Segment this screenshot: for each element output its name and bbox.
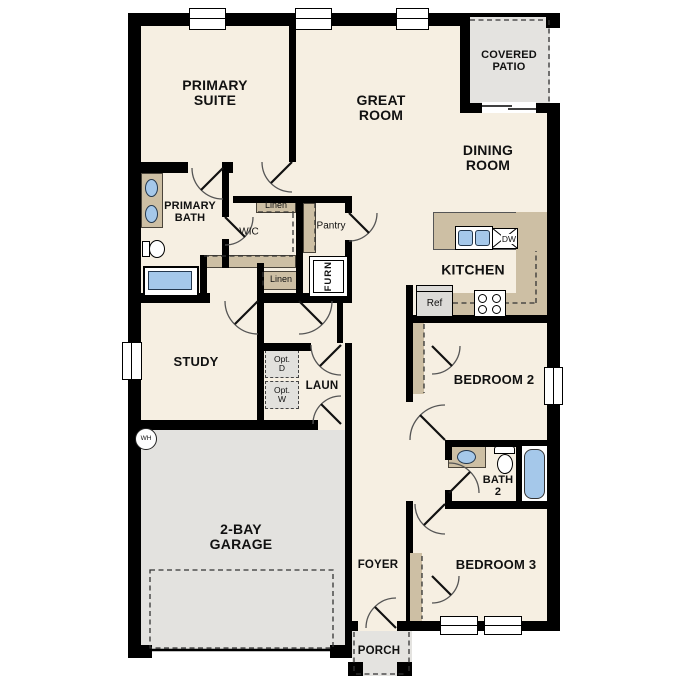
- label-linen-top: Linen: [265, 201, 287, 211]
- label-wic: WIC: [239, 228, 258, 239]
- water-heater: WH: [135, 428, 157, 450]
- bath2-toilet-tank: [494, 446, 515, 454]
- label-kitchen: KITCHEN: [441, 262, 505, 277]
- label-linen-bottom: Linen: [270, 275, 292, 285]
- label-foyer: FOYER: [358, 559, 399, 571]
- window-left-study: [122, 342, 142, 380]
- bath2-toilet-bowl: [497, 454, 513, 474]
- burner-1: [478, 294, 487, 303]
- label-great-room: GREATROOM: [357, 93, 406, 123]
- label-primary-bath: PRIMARYBATH: [164, 201, 216, 225]
- label-pantry: Pantry: [317, 222, 346, 233]
- fridge-label: Ref: [417, 298, 452, 309]
- window-top-1: [189, 8, 226, 30]
- bath2-sink: [457, 450, 476, 464]
- label-porch: PORCH: [358, 645, 401, 657]
- primary-bath-sink-1: [145, 179, 158, 197]
- fridge-box: Ref: [416, 285, 453, 317]
- window-right-bedroom2: [544, 367, 563, 405]
- bath2-tub: [524, 449, 545, 499]
- primary-bath-sink-2: [145, 205, 158, 223]
- window-bottom-bed3-2: [484, 616, 522, 635]
- kitchen-sink-unit: [455, 226, 493, 250]
- dishwasher-box: DW: [492, 228, 518, 249]
- furnace-box: FURN: [309, 256, 348, 297]
- primary-tub: [143, 266, 199, 297]
- floor-plan: Opt. D Opt. W: [0, 0, 687, 687]
- dishwasher-label: DW: [501, 234, 517, 244]
- label-laundry: LAUN: [306, 380, 339, 392]
- label-dining-room: DININGROOM: [463, 143, 513, 173]
- primary-toilet-bowl: [149, 240, 165, 258]
- label-bedroom3: BEDROOM 3: [456, 558, 537, 572]
- stove-cooktop: [474, 290, 506, 317]
- burner-2: [492, 294, 501, 303]
- label-bath2: BATH2: [483, 475, 514, 499]
- label-garage: 2-BAYGARAGE: [210, 522, 273, 552]
- label-primary-suite: PRIMARYSUITE: [182, 78, 247, 108]
- dashed-lines: [150, 20, 549, 674]
- sink-basin-right: [475, 230, 490, 246]
- label-bedroom2: BEDROOM 2: [454, 373, 535, 387]
- window-bottom-bed3-1: [440, 616, 478, 635]
- burner-4: [492, 305, 501, 314]
- dashed-and-door-swing-layer: [0, 0, 687, 687]
- furnace-inner-frame: FURN: [313, 260, 344, 293]
- furnace-label: FURN: [323, 261, 334, 291]
- sink-basin-left: [458, 230, 473, 246]
- window-top-2: [295, 8, 332, 30]
- label-covered-patio: COVEREDPATIO: [481, 50, 537, 74]
- primary-tub-basin: [148, 271, 192, 290]
- window-top-3: [396, 8, 429, 30]
- burner-3: [478, 305, 487, 314]
- label-study: STUDY: [173, 355, 218, 369]
